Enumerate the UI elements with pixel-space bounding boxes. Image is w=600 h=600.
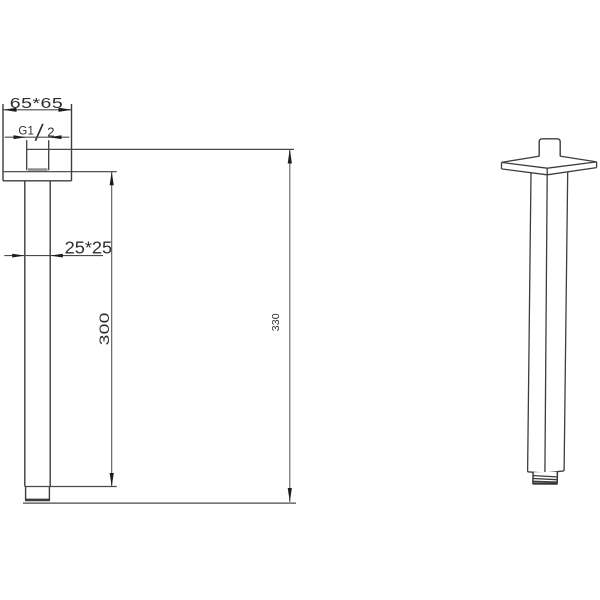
- svg-text:300: 300: [96, 312, 112, 345]
- svg-text:25*25: 25*25: [65, 238, 113, 258]
- svg-text:330: 330: [270, 313, 282, 331]
- svg-text:G1: G1: [18, 126, 34, 138]
- svg-text:65*65: 65*65: [10, 94, 64, 111]
